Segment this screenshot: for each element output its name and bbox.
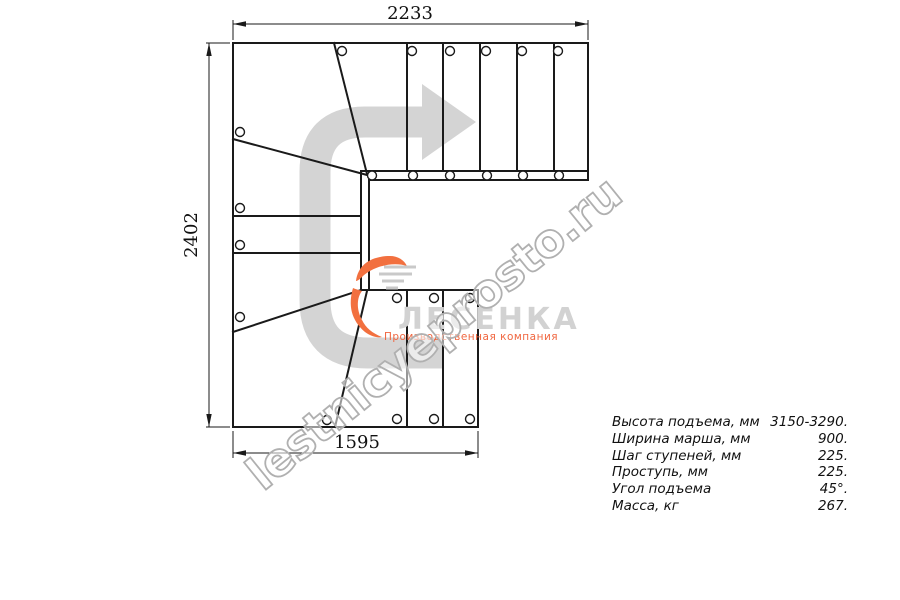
spec-label: Масса, кг xyxy=(612,498,679,515)
spec-row-tread: Проступь, мм 225. xyxy=(612,464,848,481)
specifications-table: Высота подъема, мм 3150-3290. Ширина мар… xyxy=(612,414,848,515)
spec-value: 267. xyxy=(818,498,848,515)
spec-value: 900. xyxy=(818,431,848,448)
spec-row-step-pitch: Шаг ступеней, мм 225. xyxy=(612,448,848,465)
spec-label: Шаг ступеней, мм xyxy=(612,448,741,465)
dimension-top-value: 2233 xyxy=(387,3,433,24)
staircase-drawing-page: 2233 2402 1595 xyxy=(0,0,900,600)
spec-row-flight-width: Ширина марша, мм 900. xyxy=(612,431,848,448)
dimension-top: 2233 xyxy=(233,3,588,40)
spec-value: 45°. xyxy=(820,481,848,498)
spec-row-mass: Масса, кг 267. xyxy=(612,498,848,515)
spec-value: 225. xyxy=(818,464,848,481)
spec-value: 3150-3290. xyxy=(770,414,848,431)
dimension-left: 2402 xyxy=(181,43,230,427)
spec-label: Проступь, мм xyxy=(612,464,708,481)
spec-label: Высота подъема, мм xyxy=(612,414,760,431)
spec-value: 225. xyxy=(818,448,848,465)
spec-label: Ширина марша, мм xyxy=(612,431,751,448)
dimension-left-value: 2402 xyxy=(181,212,202,258)
spec-row-angle: Угол подъема 45°. xyxy=(612,481,848,498)
spec-row-lift-height: Высота подъема, мм 3150-3290. xyxy=(612,414,848,431)
spec-label: Угол подъема xyxy=(612,481,711,498)
